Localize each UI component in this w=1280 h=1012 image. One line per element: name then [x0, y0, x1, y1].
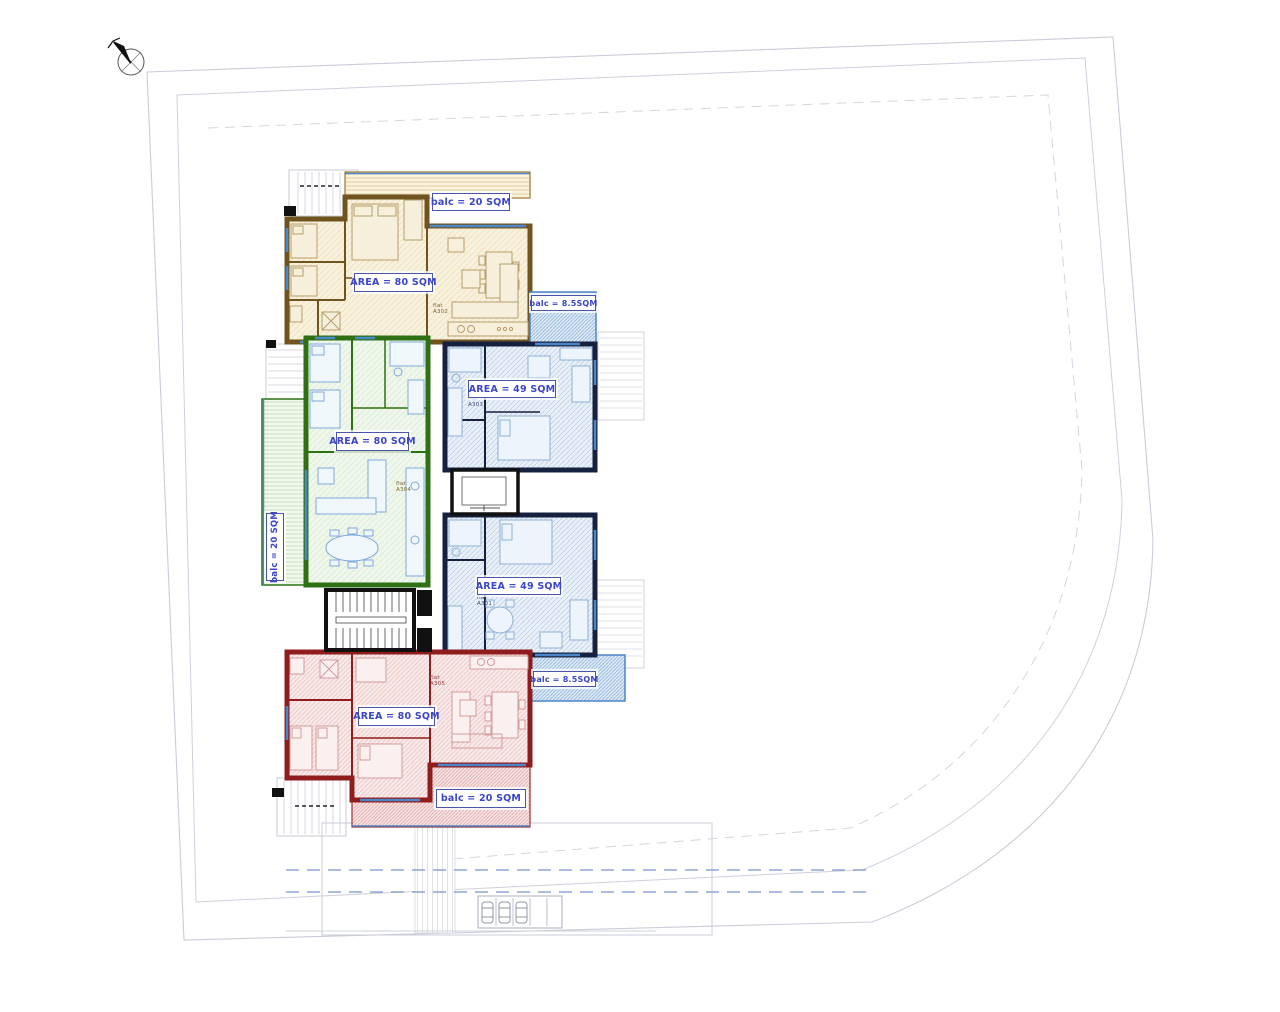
ramp-hatch: [415, 823, 455, 933]
area-label-a303: AREA = 49 SQM: [468, 380, 556, 398]
car-icon: [499, 902, 510, 923]
duct-shaft: [417, 590, 432, 652]
elevator-core: [452, 470, 518, 514]
unit-a304-green: [262, 338, 428, 585]
balc-label-a301: balc = 8.5SQM: [533, 671, 596, 687]
floor-plan-drawing: [0, 0, 1280, 1012]
external-staircase-right-top: [598, 332, 644, 420]
flat-number-a301: flat A301: [477, 595, 492, 607]
balc-label-a305: balc = 20 SQM: [436, 789, 526, 808]
area-label-a302: AREA = 80 SQM: [354, 273, 433, 292]
area-label-a305: AREA = 80 SQM: [358, 707, 435, 726]
balc-label-a303: balc = 8.5SQM: [531, 295, 596, 311]
area-label-a301: AREA = 49 SQM: [477, 577, 561, 595]
flat-number-a302: flat A302: [433, 303, 448, 315]
flat-number-a304: flat A304: [396, 481, 411, 493]
floor-plan-canvas: balc = 20 SQM AREA = 80 SQM balc = 8.5SQ…: [0, 0, 1280, 1012]
parking-stalls: [478, 896, 562, 928]
area-label-a304: AREA = 80 SQM: [336, 432, 409, 451]
stairwell-core: [326, 590, 414, 650]
car-icon: [516, 902, 527, 923]
north-arrow-icon: [108, 38, 144, 75]
car-icon: [482, 902, 493, 923]
balc-label-a302: balc = 20 SQM: [432, 193, 510, 211]
flat-number-a305: flat A305: [430, 675, 445, 687]
external-staircase-bottom-left: [272, 778, 346, 836]
balc-label-a304: balc = 20 SQM: [266, 513, 284, 581]
